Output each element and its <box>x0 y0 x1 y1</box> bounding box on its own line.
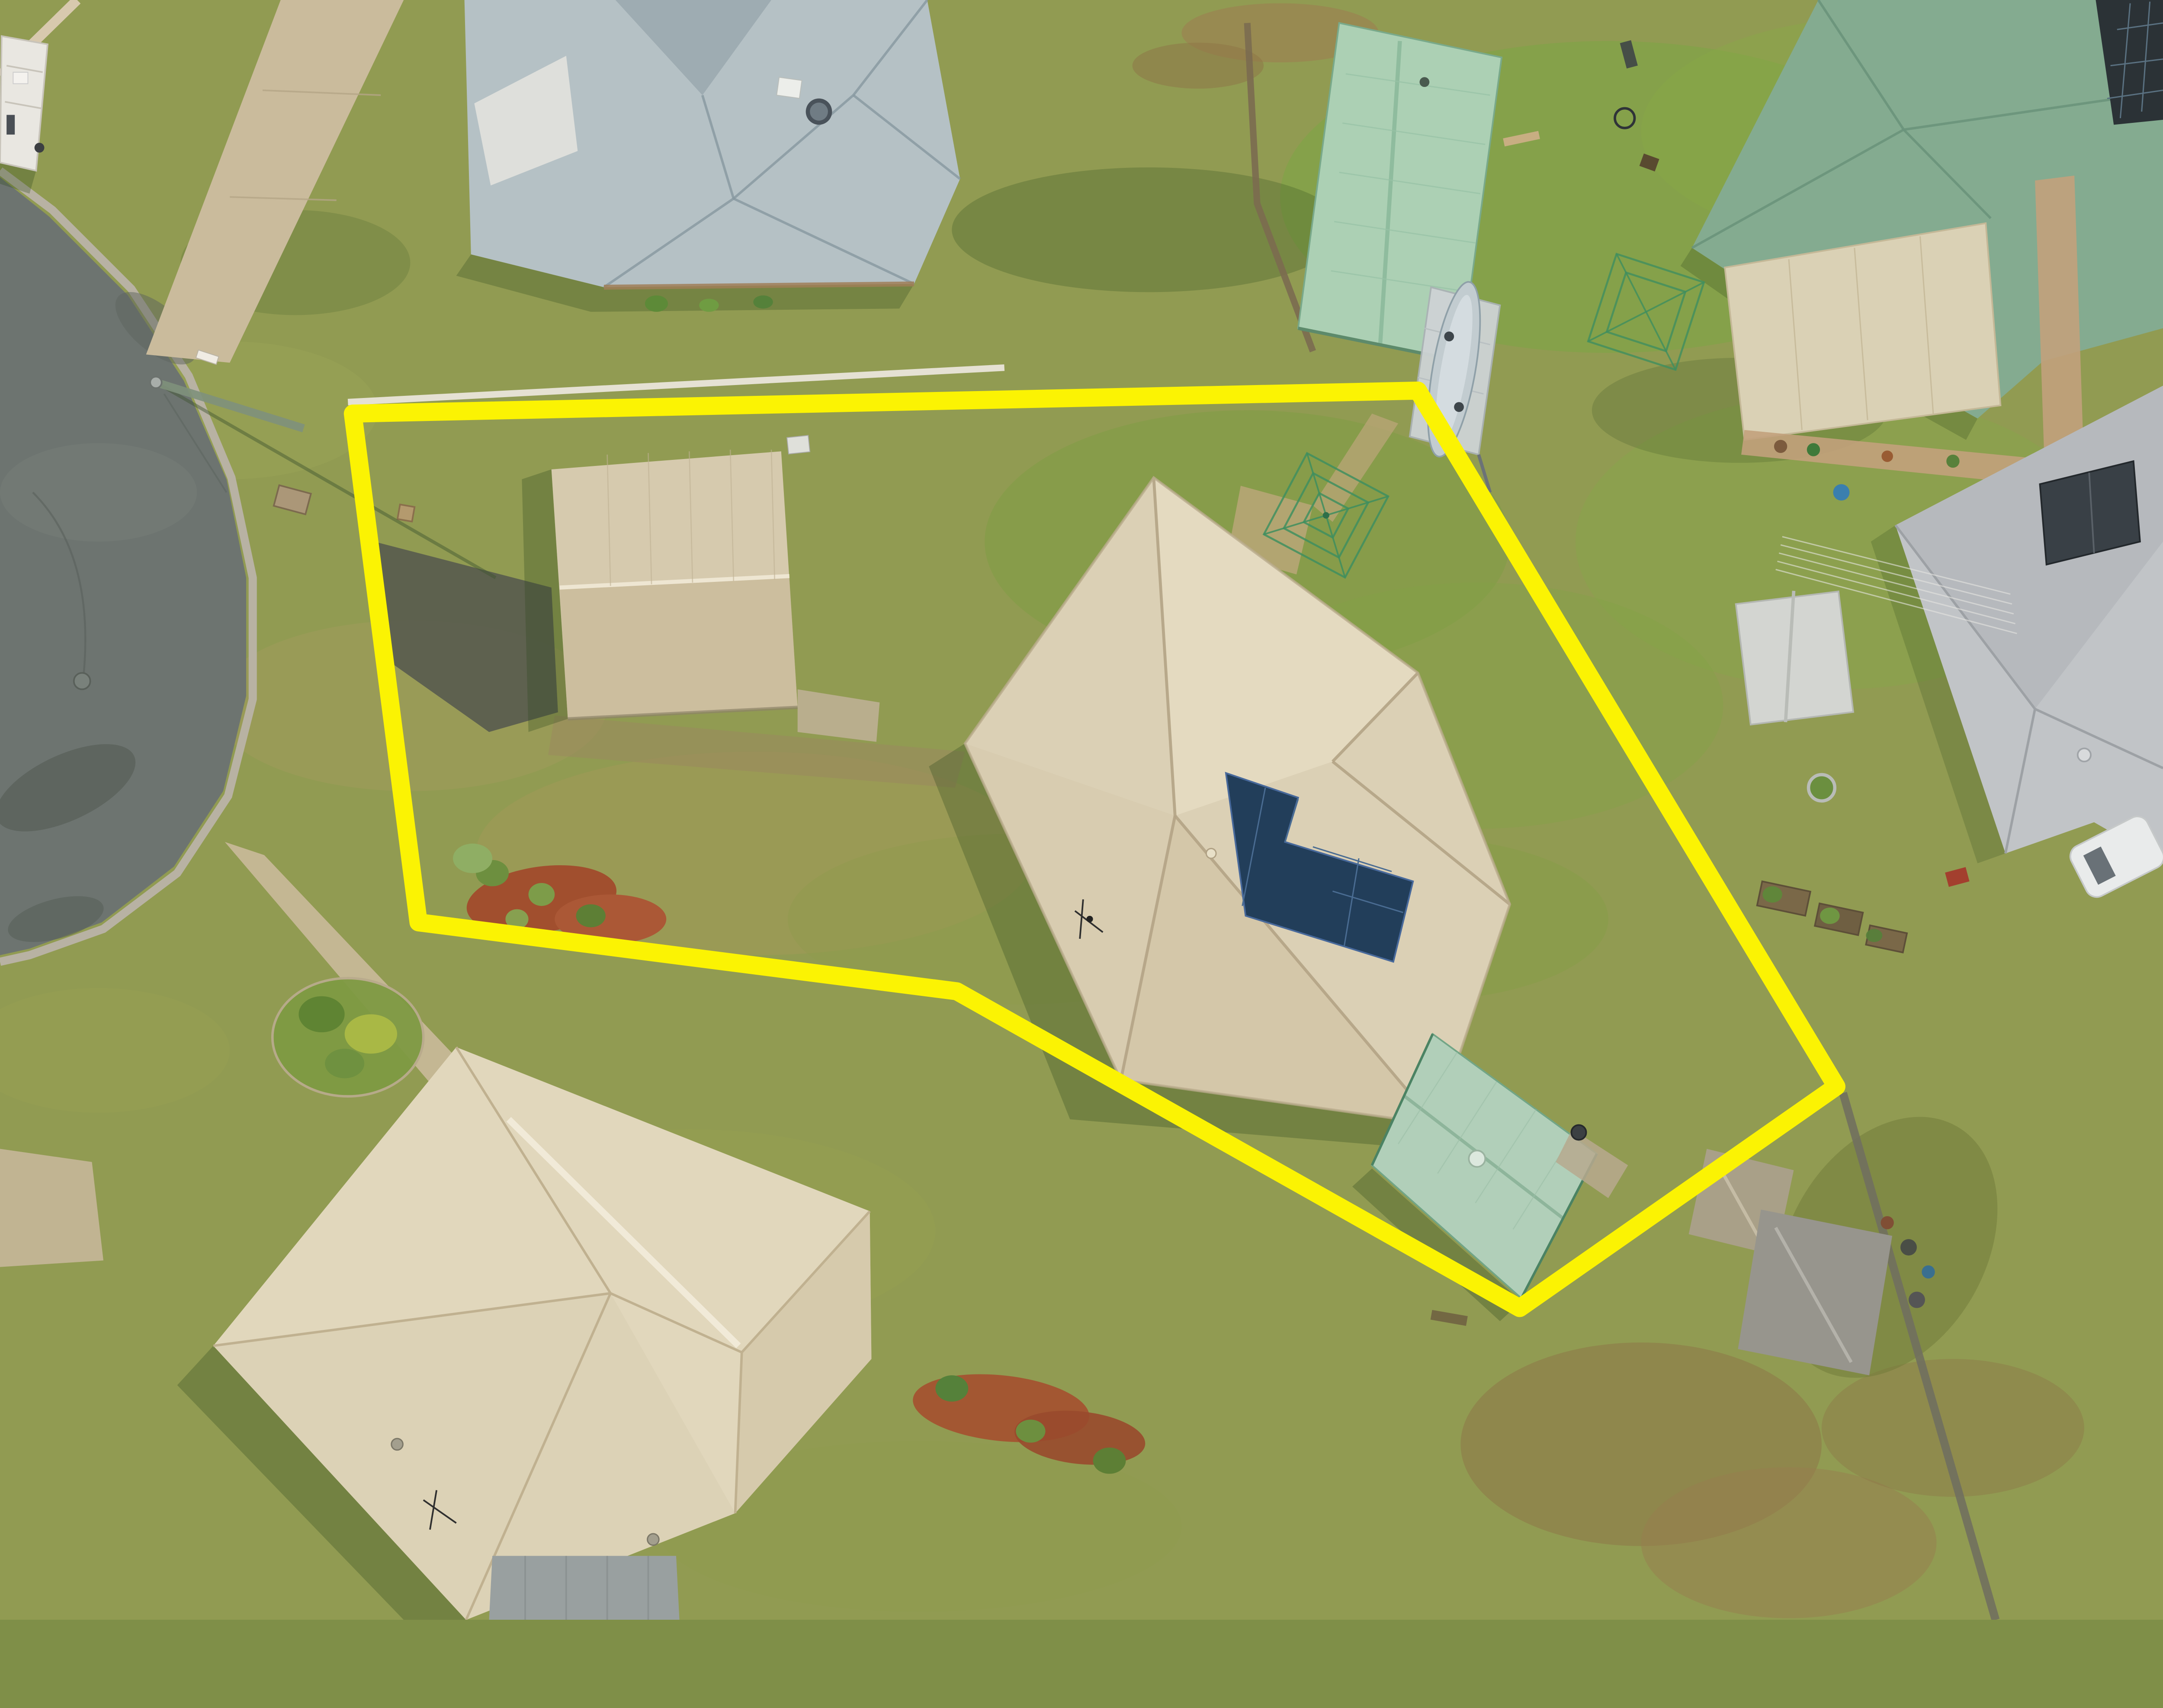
shed-white-roof <box>1736 591 1853 725</box>
round-planter <box>1809 775 1835 801</box>
yard-layer-part <box>1093 1448 1126 1474</box>
rv-motorhome <box>0 36 48 170</box>
power-pole <box>150 377 162 388</box>
blue-barrel <box>1922 1265 1935 1278</box>
yard-layer-part <box>529 883 555 906</box>
rv-roof-vent <box>13 72 28 84</box>
house-top-left-part <box>699 299 719 311</box>
yard-layer-part <box>345 1014 397 1053</box>
brick-wall-edge <box>604 284 914 287</box>
rv-wheel <box>35 143 45 153</box>
house-small-cream <box>552 449 798 719</box>
roof-vent <box>1206 848 1216 858</box>
boat-seat <box>1444 331 1454 341</box>
house-top-left-part <box>645 295 668 312</box>
whirlybird-vent <box>1469 1150 1485 1167</box>
house-right-grey-part <box>1820 908 1840 924</box>
pot <box>1881 1216 1893 1229</box>
grass-layer-part <box>1641 1467 1937 1618</box>
yard-layer-part <box>935 1375 968 1402</box>
ac-unit <box>787 435 810 454</box>
yard-layer-part <box>1016 1419 1045 1442</box>
house-main-cream-part <box>1086 916 1093 922</box>
road-layer-part <box>0 443 197 542</box>
pot-plant <box>1946 455 1959 468</box>
yard-layer-part <box>325 1049 364 1078</box>
roof-vent <box>648 1534 659 1545</box>
roof-vent <box>392 1438 403 1450</box>
grass-layer-part <box>1133 43 1264 89</box>
pot-plant-blue <box>1833 484 1849 501</box>
whirlybird-vent <box>2078 748 2091 761</box>
sidewalk-bottom-left <box>0 1149 103 1267</box>
rv-window <box>6 115 15 135</box>
house-top-left-part <box>753 295 773 308</box>
yard-item <box>1900 1239 1917 1255</box>
house-right-grey-part <box>1762 886 1782 903</box>
yard-item <box>1909 1292 1925 1308</box>
pot-plant <box>1881 450 1893 462</box>
yard-layer-part <box>298 996 344 1032</box>
roof-vent-box <box>777 77 802 99</box>
patio-roof-grey <box>489 1556 680 1620</box>
house-right-grey-part <box>1866 929 1882 942</box>
water-tank <box>1571 1125 1586 1140</box>
letterbox <box>398 504 415 522</box>
roof-facet <box>560 578 798 719</box>
yard-layer-part <box>576 904 606 927</box>
boat-seat <box>1454 402 1464 412</box>
shed-grey-roof <box>1738 1210 1892 1375</box>
clotheslines-part <box>1323 512 1329 519</box>
vent-pipe <box>1419 77 1429 87</box>
manhole-cover <box>74 673 90 689</box>
yard-layer-part <box>453 844 492 873</box>
pot-plant <box>1774 440 1787 453</box>
house-top-left-part <box>810 103 828 121</box>
pot-plant <box>1807 443 1820 456</box>
aerial-photo-canvas <box>0 0 2163 1620</box>
